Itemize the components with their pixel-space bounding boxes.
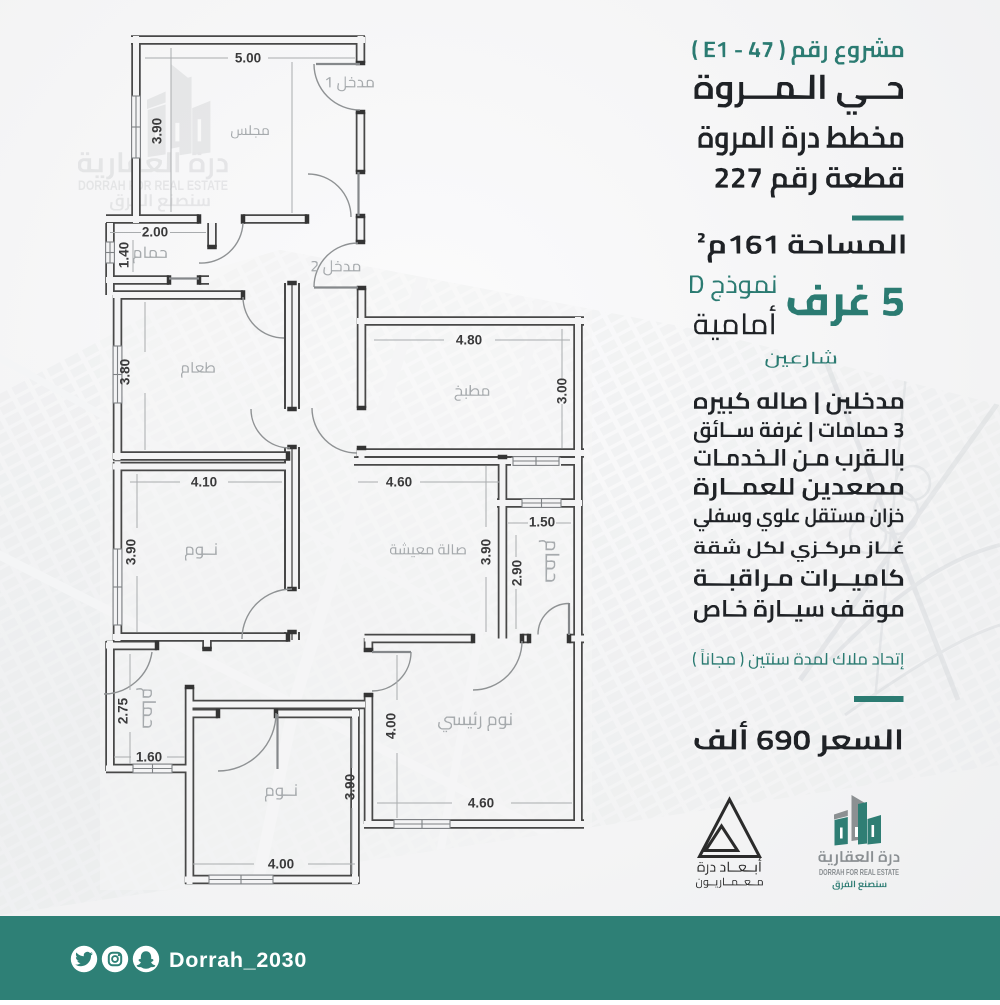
svg-text:3.90: 3.90	[124, 539, 139, 565]
svg-text:4.10: 4.10	[191, 475, 217, 490]
svg-text:3.80: 3.80	[118, 359, 133, 385]
svg-text:5.00: 5.00	[235, 51, 261, 66]
svg-text:DORRAH FOR REAL ESTATE: DORRAH FOR REAL ESTATE	[78, 178, 228, 193]
svg-text:3.90: 3.90	[150, 118, 165, 144]
svg-text:1.50: 1.50	[529, 515, 555, 530]
svg-text:3.00: 3.00	[555, 378, 570, 404]
svg-text:1.40: 1.40	[117, 242, 132, 268]
svg-text:3.90: 3.90	[479, 539, 494, 565]
svg-text:2.90: 2.90	[510, 560, 525, 586]
svg-text:4.00: 4.00	[384, 713, 399, 739]
svg-text:4.60: 4.60	[386, 475, 412, 490]
svg-text:4.60: 4.60	[468, 796, 494, 811]
svg-text:3.90: 3.90	[343, 774, 358, 800]
svg-text:Dorrah_2030: Dorrah_2030	[169, 948, 307, 972]
svg-text:4.00: 4.00	[268, 857, 294, 872]
svg-text:2.75: 2.75	[116, 697, 131, 724]
svg-text:1.60: 1.60	[136, 750, 162, 765]
svg-text:4.80: 4.80	[456, 333, 482, 348]
svg-text:DORRAH FOR REAL ESTATE: DORRAH FOR REAL ESTATE	[819, 868, 899, 877]
svg-text:2.00: 2.00	[142, 225, 168, 240]
